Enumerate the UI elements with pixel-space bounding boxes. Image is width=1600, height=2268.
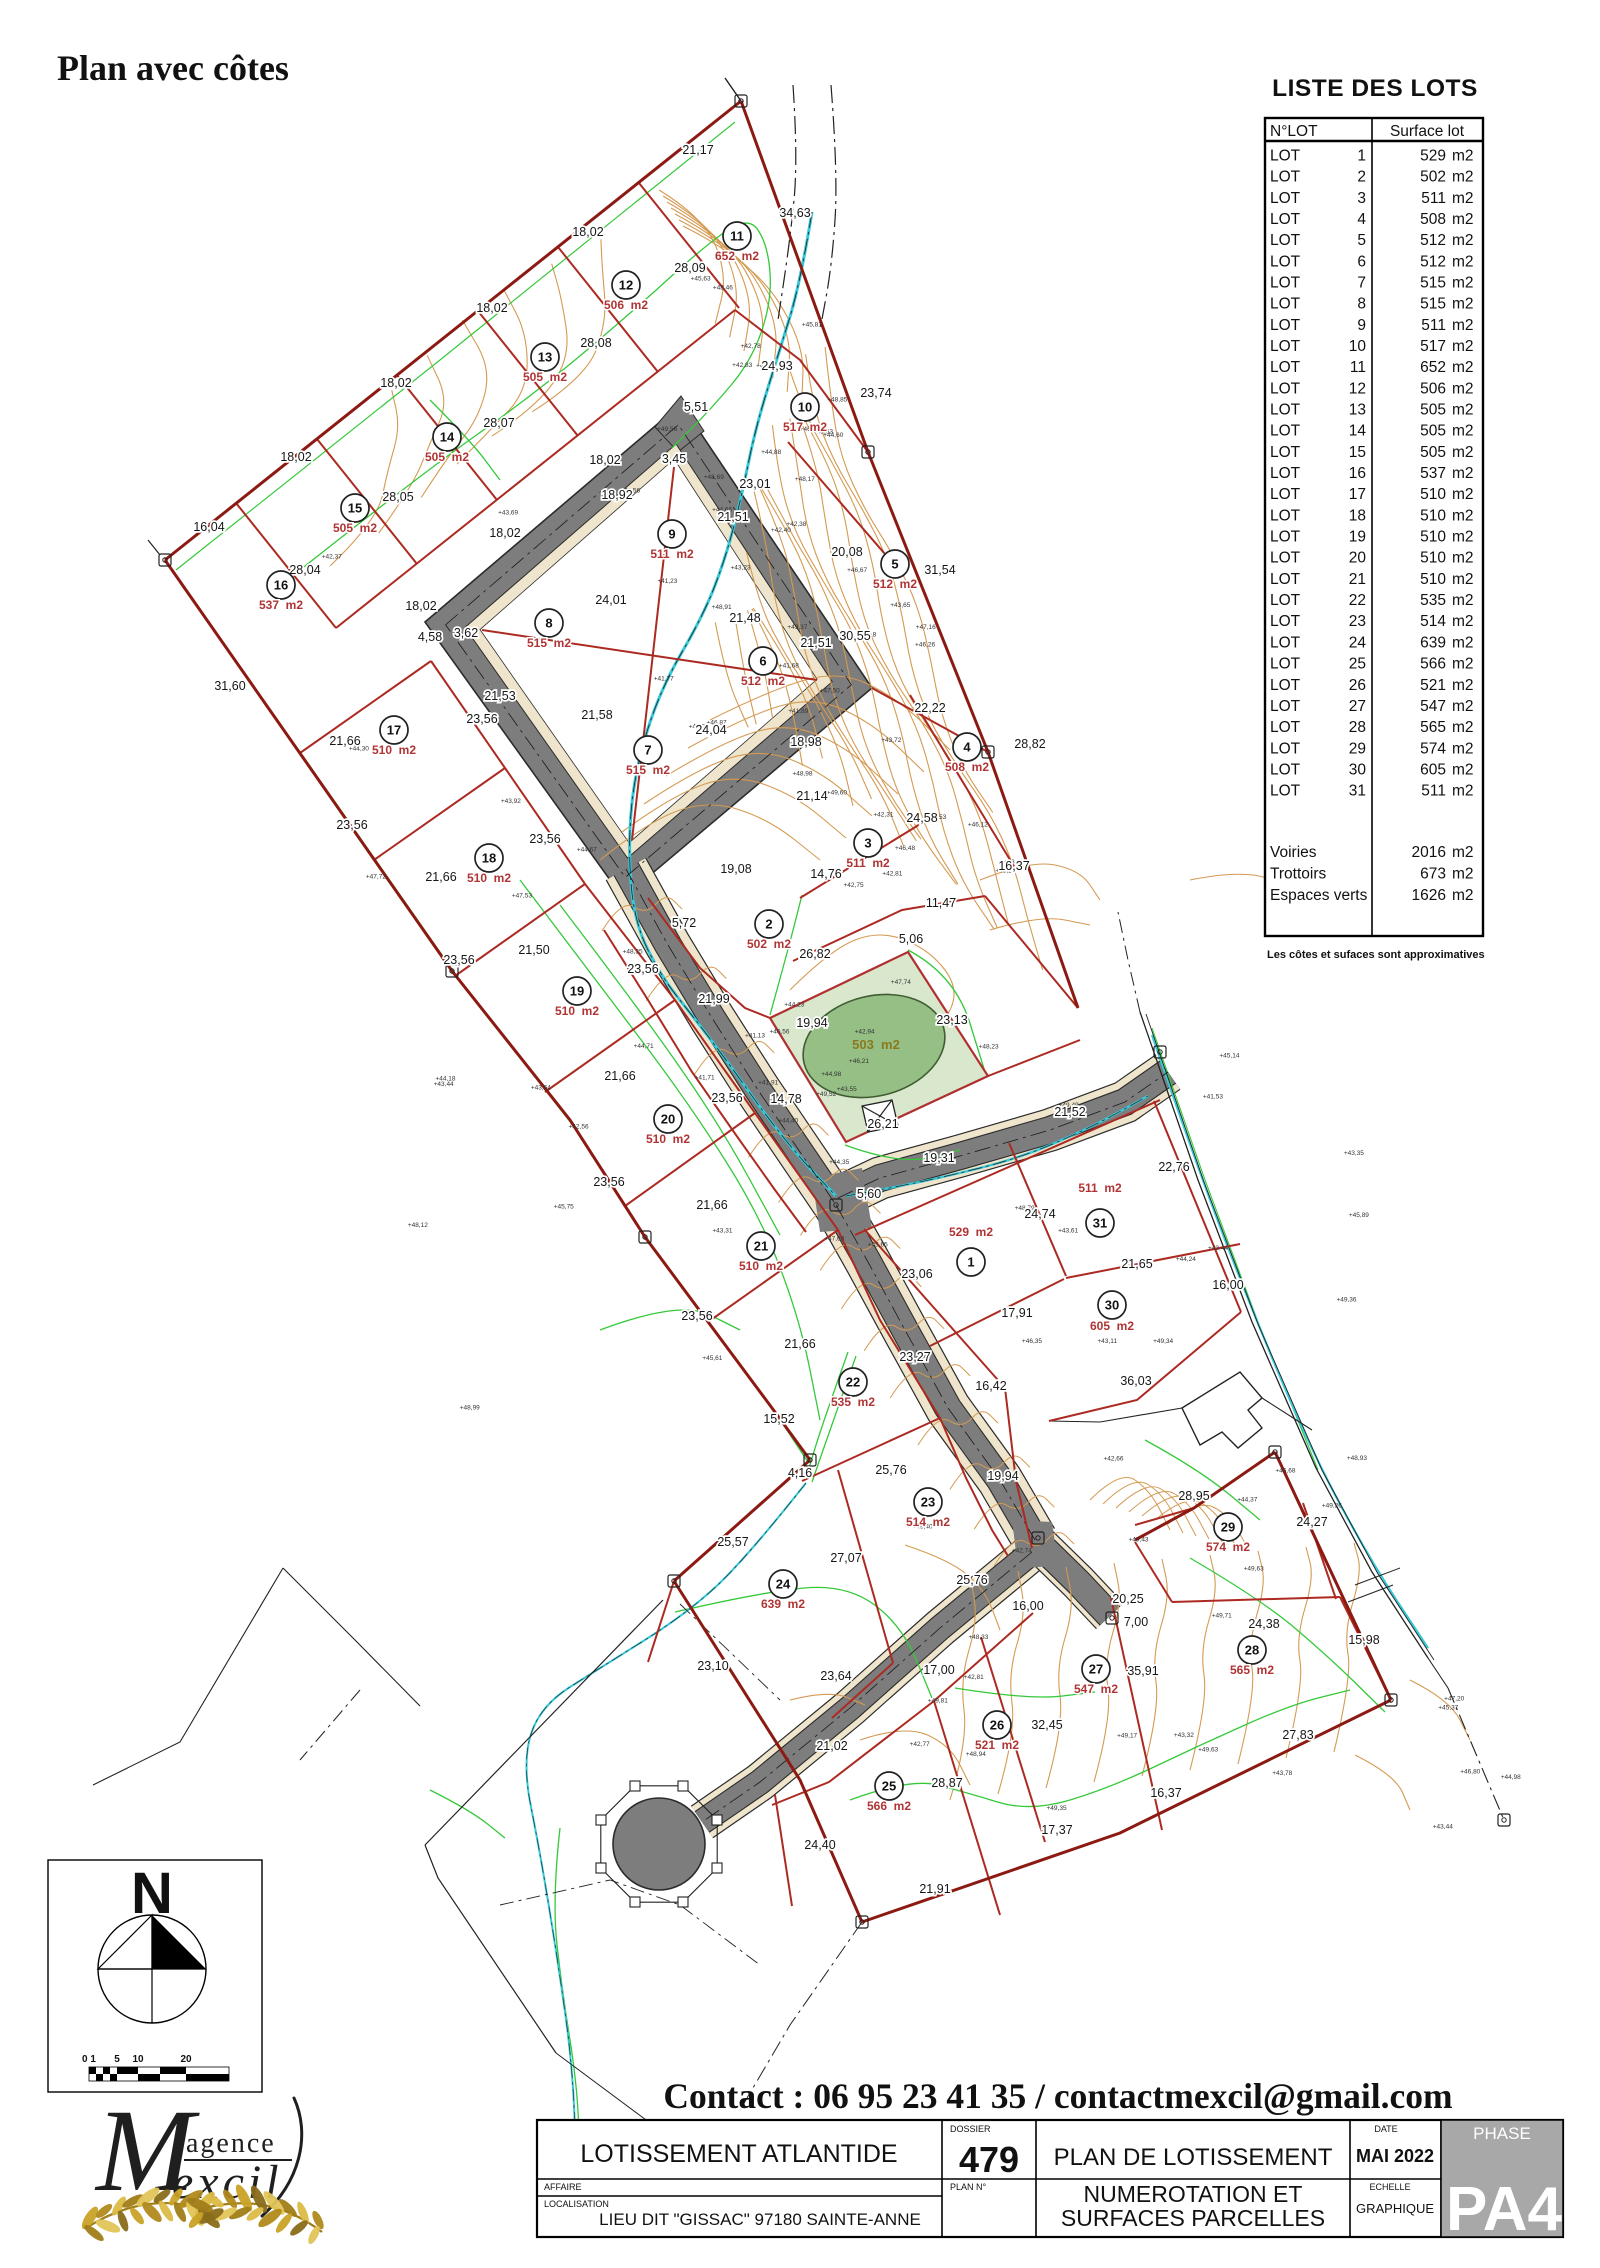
svg-text:PHASE: PHASE <box>1473 2124 1531 2143</box>
svg-text:502: 502 <box>1420 169 1446 186</box>
svg-text:m2: m2 <box>1452 402 1474 419</box>
svg-text:+49,43: +49,43 <box>1128 1537 1148 1544</box>
svg-text:14: 14 <box>1349 423 1367 440</box>
svg-text:+47,20: +47,20 <box>1444 1695 1464 1702</box>
svg-text:+42,31: +42,31 <box>873 811 893 818</box>
svg-text:16,37: 16,37 <box>1150 1786 1181 1800</box>
svg-text:+42,83: +42,83 <box>732 362 752 369</box>
svg-text:LOT: LOT <box>1270 571 1301 588</box>
svg-text:LOT: LOT <box>1270 783 1301 800</box>
svg-text:23: 23 <box>1349 613 1366 630</box>
svg-text:Voiries: Voiries <box>1270 844 1317 861</box>
svg-text:506 m2: 506 m2 <box>604 298 648 312</box>
svg-text:21,52: 21,52 <box>1054 1105 1085 1119</box>
svg-text:23,56: 23,56 <box>593 1175 624 1189</box>
svg-text:505: 505 <box>1420 444 1446 461</box>
svg-text:+48,12: +48,12 <box>408 1222 428 1229</box>
svg-text:529: 529 <box>1420 148 1446 165</box>
svg-text:+49,36: +49,36 <box>1336 1296 1356 1303</box>
svg-text:31: 31 <box>1349 783 1366 800</box>
svg-text:18: 18 <box>482 851 496 866</box>
svg-text:10: 10 <box>132 2054 144 2065</box>
svg-text:LOTISSEMENT ATLANTIDE: LOTISSEMENT ATLANTIDE <box>580 2140 897 2168</box>
svg-text:3,45: 3,45 <box>662 452 686 466</box>
svg-text:27: 27 <box>1089 1662 1103 1677</box>
svg-text:503 m2: 503 m2 <box>852 1037 900 1052</box>
svg-text:479: 479 <box>959 2139 1019 2180</box>
svg-text:21,17: 21,17 <box>682 143 713 157</box>
svg-text:+43,64: +43,64 <box>531 1085 551 1092</box>
svg-text:652 m2: 652 m2 <box>715 249 759 263</box>
svg-text:28,82: 28,82 <box>1014 737 1045 751</box>
svg-text:+47,16: +47,16 <box>916 624 936 631</box>
svg-text:18,02: 18,02 <box>405 599 436 613</box>
svg-text:+46,35: +46,35 <box>1022 1338 1042 1345</box>
svg-text:511 m2: 511 m2 <box>846 856 890 870</box>
svg-text:25: 25 <box>882 1779 896 1794</box>
svg-text:LOT: LOT <box>1270 169 1301 186</box>
svg-text:m2: m2 <box>1452 698 1474 715</box>
svg-text:+48,17: +48,17 <box>795 476 815 483</box>
svg-text:505: 505 <box>1420 402 1446 419</box>
svg-text:LOT: LOT <box>1270 656 1301 673</box>
svg-text:m2: m2 <box>1452 613 1474 630</box>
svg-text:+43,35: +43,35 <box>1344 1150 1364 1157</box>
svg-text:m2: m2 <box>1452 465 1474 482</box>
svg-text:9: 9 <box>668 527 675 542</box>
svg-text:21,02: 21,02 <box>816 1739 847 1753</box>
svg-text:23,56: 23,56 <box>681 1309 712 1323</box>
svg-text:+45,75: +45,75 <box>554 1204 574 1211</box>
svg-text:+41,91: +41,91 <box>758 1079 778 1086</box>
svg-text:15: 15 <box>1349 444 1366 461</box>
svg-text:24,93: 24,93 <box>761 359 792 373</box>
svg-text:+48,98: +48,98 <box>792 770 812 777</box>
svg-text:+49,35: +49,35 <box>1047 1805 1067 1812</box>
svg-text:1: 1 <box>967 1255 974 1270</box>
svg-text:19,94: 19,94 <box>796 1016 827 1030</box>
svg-text:0 1: 0 1 <box>82 2054 96 2065</box>
svg-text:+49,37: +49,37 <box>787 624 807 631</box>
svg-text:+42,38: +42,38 <box>786 521 806 528</box>
svg-text:PA4: PA4 <box>1446 2175 1563 2244</box>
svg-text:Plan avec côtes: Plan avec côtes <box>57 48 289 88</box>
svg-text:m2: m2 <box>1452 359 1474 376</box>
svg-text:17,00: 17,00 <box>923 1663 954 1677</box>
svg-text:511 m2: 511 m2 <box>650 547 694 561</box>
svg-text:21,53: 21,53 <box>484 689 515 703</box>
svg-text:16: 16 <box>1349 465 1366 482</box>
svg-text:14,76: 14,76 <box>810 867 841 881</box>
svg-text:MAI 2022: MAI 2022 <box>1356 2146 1434 2166</box>
svg-text:7,00: 7,00 <box>1124 1615 1148 1629</box>
svg-text:512: 512 <box>1420 232 1446 249</box>
svg-text:+44,37: +44,37 <box>1237 1497 1257 1504</box>
svg-text:574: 574 <box>1420 740 1446 757</box>
svg-text:30: 30 <box>1349 761 1367 778</box>
svg-text:17,37: 17,37 <box>1041 1823 1072 1837</box>
svg-text:25,76: 25,76 <box>956 1573 987 1587</box>
svg-text:PLAN DE LOTISSEMENT: PLAN DE LOTISSEMENT <box>1054 2144 1333 2171</box>
svg-text:LOT: LOT <box>1270 740 1301 757</box>
svg-text:510 m2: 510 m2 <box>372 743 416 757</box>
svg-text:12: 12 <box>619 278 633 293</box>
svg-text:23,74: 23,74 <box>860 386 891 400</box>
svg-text:m2: m2 <box>1452 169 1474 186</box>
svg-text:19: 19 <box>570 984 584 999</box>
svg-text:LOT: LOT <box>1270 634 1301 651</box>
svg-text:27,83: 27,83 <box>1282 1728 1313 1742</box>
svg-text:21,91: 21,91 <box>919 1882 950 1896</box>
svg-text:m2: m2 <box>1452 190 1474 207</box>
svg-text:m2: m2 <box>1452 783 1474 800</box>
svg-text:23: 23 <box>921 1495 935 1510</box>
svg-text:3,62: 3,62 <box>454 626 478 640</box>
svg-text:23,27: 23,27 <box>899 1350 930 1364</box>
svg-text:LISTE DES LOTS: LISTE DES LOTS <box>1272 75 1478 102</box>
svg-text:566 m2: 566 m2 <box>867 1799 911 1813</box>
svg-text:+42,77: +42,77 <box>910 1741 930 1748</box>
svg-text:510: 510 <box>1420 571 1446 588</box>
svg-text:m2: m2 <box>1452 486 1474 503</box>
svg-text:26: 26 <box>1349 677 1366 694</box>
svg-text:agence: agence <box>186 2128 276 2159</box>
svg-text:510 m2: 510 m2 <box>555 1004 599 1018</box>
svg-text:LOT: LOT <box>1270 359 1301 376</box>
svg-text:m2: m2 <box>1452 232 1474 249</box>
svg-text:+45,37: +45,37 <box>1438 1705 1458 1712</box>
svg-text:+44,24: +44,24 <box>1176 1256 1196 1263</box>
svg-text:+49,60: +49,60 <box>827 789 847 796</box>
svg-text:4,58: 4,58 <box>418 630 442 644</box>
svg-text:510: 510 <box>1420 550 1446 567</box>
svg-text:21,66: 21,66 <box>784 1337 815 1351</box>
svg-text:605: 605 <box>1420 761 1446 778</box>
svg-text:LOT: LOT <box>1270 613 1301 630</box>
svg-text:26,21: 26,21 <box>867 1117 898 1131</box>
svg-text:+49,56: +49,56 <box>657 426 677 433</box>
svg-text:+48,33: +48,33 <box>968 1634 988 1641</box>
svg-text:+44,88: +44,88 <box>761 449 781 456</box>
svg-text:652: 652 <box>1420 359 1446 376</box>
svg-text:DATE: DATE <box>1374 2124 1397 2134</box>
svg-text:LOT: LOT <box>1270 275 1301 292</box>
svg-text:+49,34: +49,34 <box>1153 1338 1173 1345</box>
svg-text:m2: m2 <box>1452 592 1474 609</box>
svg-text:639 m2: 639 m2 <box>761 1597 805 1611</box>
svg-text:m2: m2 <box>1452 380 1474 397</box>
svg-text:m2: m2 <box>1452 211 1474 228</box>
svg-text:Surface lot: Surface lot <box>1390 123 1465 140</box>
svg-text:+44,35: +44,35 <box>829 1159 849 1166</box>
svg-text:23,06: 23,06 <box>901 1267 932 1281</box>
svg-text:+48,35: +48,35 <box>623 949 643 956</box>
svg-text:510 m2: 510 m2 <box>646 1132 690 1146</box>
svg-text:m2: m2 <box>1452 740 1474 757</box>
svg-text:m2: m2 <box>1452 719 1474 736</box>
svg-text:9: 9 <box>1357 317 1366 334</box>
svg-text:5,51: 5,51 <box>684 400 708 414</box>
svg-text:502 m2: 502 m2 <box>747 937 791 951</box>
svg-text:515: 515 <box>1420 275 1446 292</box>
svg-text:16,42: 16,42 <box>975 1379 1006 1393</box>
svg-text:31,54: 31,54 <box>924 563 955 577</box>
svg-text:6: 6 <box>1357 253 1366 270</box>
svg-text:22: 22 <box>846 1375 860 1390</box>
svg-text:13: 13 <box>1349 402 1366 419</box>
svg-text:GRAPHIQUE: GRAPHIQUE <box>1356 2201 1434 2216</box>
svg-text:Contact : 06 95 23 41 35 / con: Contact : 06 95 23 41 35 / contactmexcil… <box>663 2076 1452 2116</box>
svg-text:23,56: 23,56 <box>529 832 560 846</box>
svg-text:511: 511 <box>1421 317 1446 334</box>
svg-text:+44,67: +44,67 <box>577 847 597 854</box>
svg-text:21: 21 <box>754 1239 768 1254</box>
svg-text:7: 7 <box>644 743 651 758</box>
svg-text:508 m2: 508 m2 <box>945 760 989 774</box>
svg-text:31,60: 31,60 <box>214 679 245 693</box>
svg-text:+43,78: +43,78 <box>1272 1770 1292 1777</box>
svg-text:LOT: LOT <box>1270 253 1301 270</box>
svg-text:LOT: LOT <box>1270 444 1301 461</box>
svg-text:15,52: 15,52 <box>763 1412 794 1426</box>
svg-text:m2: m2 <box>1452 761 1474 778</box>
svg-text:+49,17: +49,17 <box>1117 1732 1137 1739</box>
svg-text:m2: m2 <box>1452 866 1474 883</box>
svg-text:+41,89: +41,89 <box>788 708 808 715</box>
svg-text:14: 14 <box>440 430 455 445</box>
svg-text:+43,23: +43,23 <box>730 565 750 572</box>
svg-text:+48,93: +48,93 <box>1347 1455 1367 1462</box>
svg-text:+41,23: +41,23 <box>657 578 677 585</box>
svg-text:24: 24 <box>1349 634 1367 651</box>
svg-text:14,78: 14,78 <box>770 1092 801 1106</box>
svg-text:+48,23: +48,23 <box>979 1043 999 1050</box>
svg-text:16,00: 16,00 <box>1012 1599 1043 1613</box>
svg-text:510 m2: 510 m2 <box>467 871 511 885</box>
svg-text:+43,55: +43,55 <box>837 1086 857 1093</box>
svg-text:20: 20 <box>180 2054 192 2065</box>
svg-text:ECHELLE: ECHELLE <box>1369 2182 1410 2192</box>
svg-text:+41,53: +41,53 <box>1203 1094 1223 1101</box>
svg-text:11: 11 <box>730 229 744 244</box>
svg-text:+47,50: +47,50 <box>820 687 840 694</box>
svg-text:18,98: 18,98 <box>790 735 821 749</box>
svg-text:LOT: LOT <box>1270 296 1301 313</box>
svg-text:LOT: LOT <box>1270 592 1301 609</box>
svg-text:30: 30 <box>1105 1298 1119 1313</box>
svg-text:+45,65: +45,65 <box>868 1241 888 1248</box>
svg-text:36,03: 36,03 <box>1120 1374 1151 1388</box>
svg-text:+42,81: +42,81 <box>882 870 902 877</box>
svg-text:21,58: 21,58 <box>581 708 612 722</box>
svg-text:3: 3 <box>864 836 871 851</box>
svg-text:m2: m2 <box>1452 634 1474 651</box>
svg-text:LOT: LOT <box>1270 698 1301 715</box>
svg-text:21,51: 21,51 <box>717 510 748 524</box>
svg-text:+42,56: +42,56 <box>569 1123 589 1130</box>
svg-text:m2: m2 <box>1452 677 1474 694</box>
svg-text:18,02: 18,02 <box>476 301 507 315</box>
svg-text:510: 510 <box>1420 507 1446 524</box>
svg-text:22,22: 22,22 <box>914 701 945 715</box>
svg-text:535: 535 <box>1420 592 1446 609</box>
svg-text:28,08: 28,08 <box>580 336 611 350</box>
svg-text:+41,71: +41,71 <box>695 1074 715 1081</box>
svg-text:514: 514 <box>1420 613 1446 630</box>
svg-text:512 m2: 512 m2 <box>873 577 917 591</box>
svg-text:+42,66: +42,66 <box>1103 1455 1123 1462</box>
svg-text:21,65: 21,65 <box>1121 1257 1152 1271</box>
svg-text:AFFAIRE: AFFAIRE <box>544 2182 582 2192</box>
svg-text:m2: m2 <box>1452 317 1474 334</box>
svg-text:LOT: LOT <box>1270 677 1301 694</box>
svg-text:605 m2: 605 m2 <box>1090 1319 1134 1333</box>
svg-text:10: 10 <box>798 400 812 415</box>
svg-text:28: 28 <box>1245 1643 1259 1658</box>
svg-text:+46,80: +46,80 <box>1460 1769 1480 1776</box>
svg-text:19,08: 19,08 <box>720 862 751 876</box>
svg-text:5,72: 5,72 <box>672 916 696 930</box>
svg-text:31: 31 <box>1093 1216 1107 1231</box>
svg-text:m2: m2 <box>1452 507 1474 524</box>
svg-text:+45,81: +45,81 <box>802 322 822 329</box>
svg-text:+43,92: +43,92 <box>501 798 521 805</box>
svg-text:535 m2: 535 m2 <box>831 1395 875 1409</box>
svg-text:+42,37: +42,37 <box>322 553 342 560</box>
svg-text:+43,32: +43,32 <box>1174 1732 1194 1739</box>
svg-text:23,10: 23,10 <box>697 1659 728 1673</box>
svg-text:2: 2 <box>1357 169 1366 186</box>
svg-text:25,76: 25,76 <box>875 1463 906 1477</box>
svg-text:505 m2: 505 m2 <box>333 521 377 535</box>
svg-text:16: 16 <box>274 578 288 593</box>
svg-text:11: 11 <box>1350 359 1366 376</box>
svg-text:1626: 1626 <box>1412 887 1446 904</box>
svg-text:23,56: 23,56 <box>466 712 497 726</box>
svg-text:1: 1 <box>1357 148 1366 165</box>
svg-text:PLAN N°: PLAN N° <box>950 2182 987 2192</box>
svg-text:17: 17 <box>387 723 401 738</box>
svg-text:24,27: 24,27 <box>1296 1515 1327 1529</box>
svg-text:21,48: 21,48 <box>729 611 760 625</box>
svg-text:m2: m2 <box>1452 275 1474 292</box>
svg-text:LOT: LOT <box>1270 402 1301 419</box>
svg-text:+48,85: +48,85 <box>827 397 847 404</box>
svg-text:24,38: 24,38 <box>1248 1617 1279 1631</box>
svg-text:510 m2: 510 m2 <box>739 1259 783 1273</box>
svg-text:+49,26: +49,26 <box>1322 1503 1342 1510</box>
svg-text:25: 25 <box>1349 656 1366 673</box>
svg-text:537 m2: 537 m2 <box>259 598 303 612</box>
svg-text:565: 565 <box>1420 719 1446 736</box>
svg-text:15,98: 15,98 <box>1348 1633 1379 1647</box>
svg-text:+44,98: +44,98 <box>1501 1774 1521 1781</box>
svg-text:515 m2: 515 m2 <box>527 636 571 650</box>
svg-text:+44,18: +44,18 <box>435 1075 455 1082</box>
svg-text:515 m2: 515 m2 <box>626 763 670 777</box>
svg-text:SURFACES PARCELLES: SURFACES PARCELLES <box>1061 2205 1325 2231</box>
svg-text:28,07: 28,07 <box>483 416 514 430</box>
svg-text:2016: 2016 <box>1412 844 1446 861</box>
svg-text:21,66: 21,66 <box>329 734 360 748</box>
svg-text:18,02: 18,02 <box>589 453 620 467</box>
svg-text:+43,31: +43,31 <box>712 1227 732 1234</box>
svg-text:15: 15 <box>348 501 362 516</box>
svg-text:5: 5 <box>1357 232 1366 249</box>
svg-text:16,04: 16,04 <box>193 520 224 534</box>
svg-text:+49,52: +49,52 <box>816 1091 836 1098</box>
svg-text:8: 8 <box>1357 296 1366 313</box>
svg-text:24,01: 24,01 <box>595 593 626 607</box>
svg-text:508: 508 <box>1420 211 1446 228</box>
svg-text:28: 28 <box>1349 719 1366 736</box>
svg-text:LOT: LOT <box>1270 550 1301 567</box>
svg-text:+48,99: +48,99 <box>460 1405 480 1412</box>
svg-text:DOSSIER: DOSSIER <box>950 2124 991 2134</box>
svg-text:+49,63: +49,63 <box>1244 1566 1264 1573</box>
svg-text:511 m2: 511 m2 <box>1078 1181 1122 1195</box>
svg-text:11,47: 11,47 <box>926 896 956 910</box>
svg-text:LOT: LOT <box>1270 761 1301 778</box>
svg-text:16,37: 16,37 <box>998 859 1029 873</box>
svg-text:+42,94: +42,94 <box>855 1029 875 1036</box>
svg-text:m2: m2 <box>1452 423 1474 440</box>
svg-text:28,09: 28,09 <box>674 261 705 275</box>
svg-text:21,66: 21,66 <box>696 1198 727 1212</box>
svg-text:29: 29 <box>1349 740 1366 757</box>
svg-text:+49,63: +49,63 <box>1198 1747 1218 1754</box>
svg-text:18,02: 18,02 <box>280 450 311 464</box>
svg-text:+46,12: +46,12 <box>968 822 988 829</box>
svg-text:LIEU DIT "GISSAC" 97180 SAINTE: LIEU DIT "GISSAC" 97180 SAINTE-ANNE <box>599 2210 921 2229</box>
svg-text:LOT: LOT <box>1270 211 1301 228</box>
svg-text:+49,81: +49,81 <box>928 1697 948 1704</box>
svg-text:m2: m2 <box>1452 529 1474 546</box>
svg-text:+41,13: +41,13 <box>745 1032 765 1039</box>
svg-text:+48,46: +48,46 <box>713 284 733 291</box>
svg-text:m2: m2 <box>1452 550 1474 567</box>
svg-text:+45,61: +45,61 <box>702 1355 722 1362</box>
svg-text:Espaces verts: Espaces verts <box>1270 887 1368 904</box>
svg-text:LOT: LOT <box>1270 148 1301 165</box>
svg-text:16,00: 16,00 <box>1212 1278 1243 1292</box>
svg-text:673: 673 <box>1420 866 1446 883</box>
svg-text:+46,67: +46,67 <box>847 567 867 574</box>
svg-text:515: 515 <box>1420 296 1446 313</box>
svg-text:24,58: 24,58 <box>906 811 937 825</box>
svg-text:18,92: 18,92 <box>601 488 632 502</box>
svg-text:512: 512 <box>1420 253 1446 270</box>
svg-text:10: 10 <box>1349 338 1367 355</box>
svg-text:30,55: 30,55 <box>839 629 870 643</box>
svg-text:4: 4 <box>963 740 971 755</box>
svg-text:Les côtes et sufaces sont appr: Les côtes et sufaces sont approximatives <box>1267 949 1485 961</box>
svg-text:12: 12 <box>1349 380 1366 397</box>
svg-text:23,13: 23,13 <box>936 1013 967 1027</box>
svg-text:+46,68: +46,68 <box>1275 1468 1295 1475</box>
svg-text:6: 6 <box>759 654 766 669</box>
svg-text:LOT: LOT <box>1270 719 1301 736</box>
svg-text:24: 24 <box>776 1577 791 1592</box>
svg-text:LOT: LOT <box>1270 380 1301 397</box>
svg-text:m2: m2 <box>1452 844 1474 861</box>
svg-text:23,56: 23,56 <box>336 818 367 832</box>
svg-text:5: 5 <box>114 2054 120 2065</box>
svg-text:21,66: 21,66 <box>425 870 456 884</box>
svg-text:35,91: 35,91 <box>1127 1664 1158 1678</box>
svg-text:+46,21: +46,21 <box>849 1058 869 1065</box>
svg-text:+41,68: +41,68 <box>779 662 799 669</box>
